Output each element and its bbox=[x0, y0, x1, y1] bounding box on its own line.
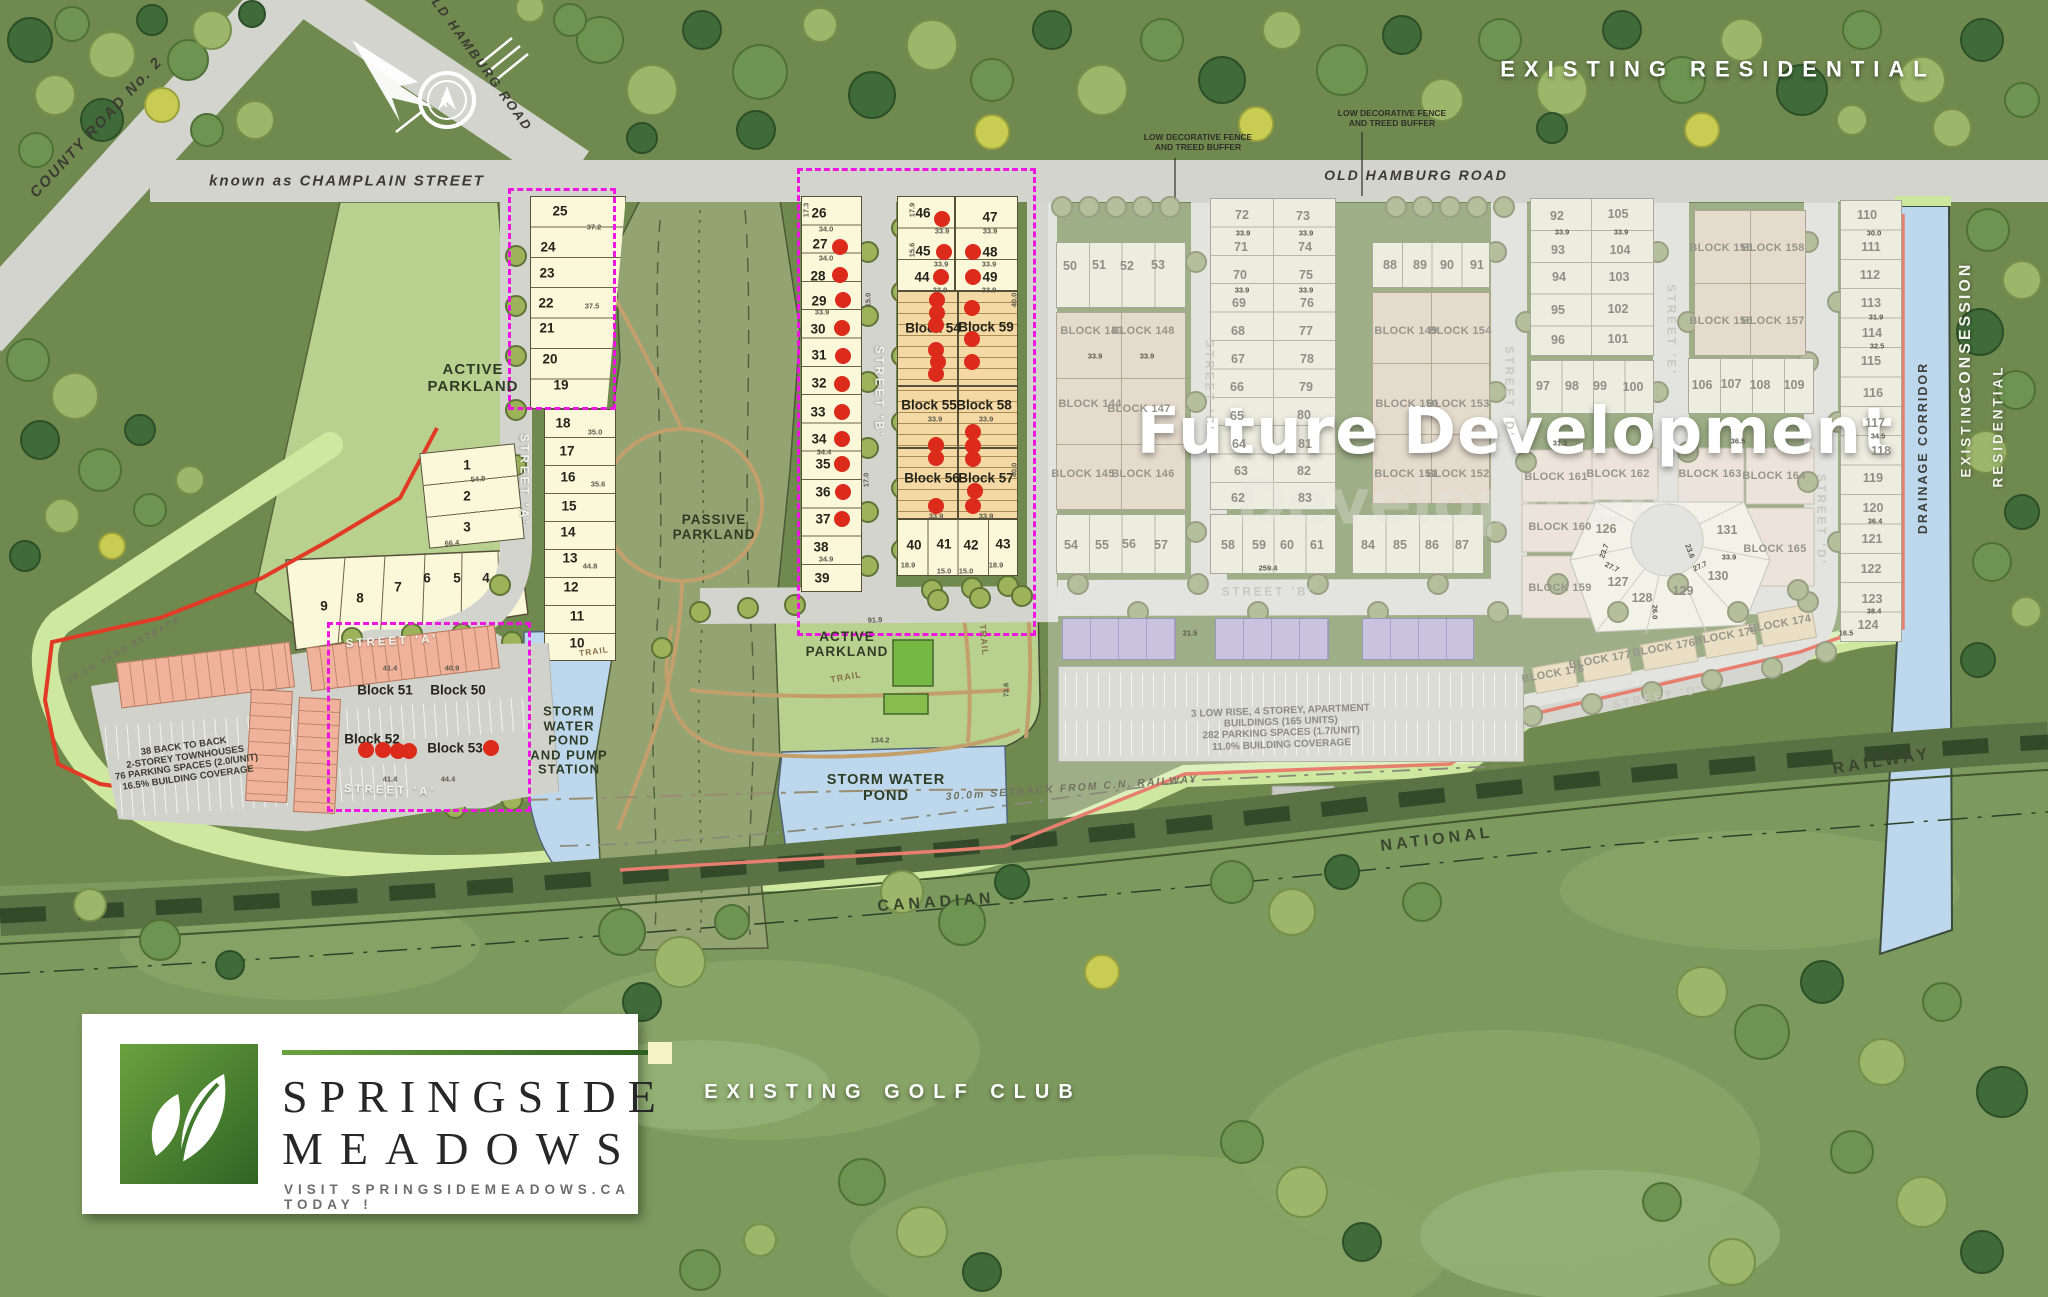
tree-icon bbox=[1677, 967, 1727, 1017]
logo-corner-chip bbox=[648, 1042, 672, 1064]
tree-icon bbox=[1308, 574, 1328, 594]
tree-icon bbox=[1440, 197, 1460, 217]
tree-icon bbox=[652, 638, 672, 658]
tree-icon bbox=[1788, 580, 1808, 600]
tree-icon bbox=[655, 937, 705, 987]
tree-icon bbox=[1486, 382, 1506, 402]
tree-icon bbox=[79, 449, 121, 491]
tree-icon bbox=[849, 72, 895, 118]
tree-icon bbox=[216, 951, 244, 979]
tree-icon bbox=[963, 1253, 1001, 1291]
tree-icon bbox=[1961, 643, 1995, 677]
tree-icon bbox=[1967, 209, 2009, 251]
tree-icon bbox=[1548, 574, 1568, 594]
tree-icon bbox=[1486, 522, 1506, 542]
tree-icon bbox=[1068, 574, 1088, 594]
tree-icon bbox=[554, 4, 586, 36]
tree-icon bbox=[975, 115, 1009, 149]
tree-icon bbox=[1721, 19, 1763, 61]
tree-icon bbox=[897, 1207, 947, 1257]
tree-icon bbox=[1403, 883, 1441, 921]
logo-name-line2: MEADOWS bbox=[282, 1122, 639, 1175]
tree-icon bbox=[1643, 1183, 1681, 1221]
tree-icon bbox=[939, 899, 985, 945]
tree-icon bbox=[1709, 1239, 1755, 1285]
tree-icon bbox=[839, 1159, 885, 1205]
tree-icon bbox=[236, 101, 274, 139]
tree-icon bbox=[1762, 658, 1782, 678]
tree-icon bbox=[1368, 602, 1388, 622]
tree-icon bbox=[1239, 107, 1273, 141]
tree-icon bbox=[1685, 113, 1719, 147]
sports-court-2 bbox=[884, 694, 928, 714]
site-plan-map: N COUNTY ROAD No. 2OLD H bbox=[0, 0, 2048, 1297]
tree-icon bbox=[1516, 312, 1536, 332]
tree-icon bbox=[733, 45, 787, 99]
tree-icon bbox=[1199, 57, 1245, 103]
tree-icon bbox=[290, 658, 310, 678]
tree-icon bbox=[193, 11, 231, 49]
tree-icon bbox=[1828, 532, 1848, 552]
tree-icon bbox=[2005, 83, 2039, 117]
tree-icon bbox=[1428, 574, 1448, 594]
tree-icon bbox=[1728, 602, 1748, 622]
tree-icon bbox=[1702, 670, 1722, 690]
tree-icon bbox=[1079, 197, 1099, 217]
tree-icon bbox=[8, 18, 52, 62]
tree-icon bbox=[1648, 242, 1668, 262]
tree-icon bbox=[1413, 197, 1433, 217]
tree-icon bbox=[1642, 682, 1662, 702]
logo-rule bbox=[282, 1050, 672, 1055]
tree-icon bbox=[137, 5, 167, 35]
tree-icon bbox=[1221, 1121, 1263, 1163]
tree-icon bbox=[1269, 889, 1315, 935]
logo-tagline: VISIT SPRINGSIDEMEADOWS.CA TODAY ! bbox=[284, 1182, 638, 1212]
tree-icon bbox=[19, 133, 53, 167]
tree-icon bbox=[1106, 197, 1126, 217]
tree-icon bbox=[1467, 197, 1487, 217]
tree-icon bbox=[1343, 1223, 1381, 1261]
tree-icon bbox=[1462, 718, 1482, 738]
tree-icon bbox=[1659, 57, 1705, 103]
tree-icon bbox=[516, 0, 544, 22]
tree-icon bbox=[55, 7, 89, 41]
tree-icon bbox=[1216, 322, 1236, 342]
tree-icon bbox=[971, 59, 1013, 101]
tree-icon bbox=[1537, 113, 1567, 143]
tree-icon bbox=[1923, 983, 1961, 1021]
tree-icon bbox=[239, 1, 265, 27]
tree-icon bbox=[1777, 65, 1827, 115]
tree-icon bbox=[1077, 65, 1127, 115]
tree-icon bbox=[89, 32, 135, 78]
tree-icon bbox=[1648, 382, 1668, 402]
tree-icon bbox=[715, 905, 749, 939]
phase-outline-north bbox=[508, 188, 616, 410]
tree-icon bbox=[680, 1250, 720, 1290]
tree-icon bbox=[1798, 472, 1818, 492]
tree-icon bbox=[1479, 19, 1521, 61]
tree-icon bbox=[1933, 109, 1971, 147]
tree-icon bbox=[1957, 309, 2003, 355]
tree-icon bbox=[1211, 861, 1253, 903]
tree-icon bbox=[1843, 11, 1881, 49]
tree-icon bbox=[1831, 1131, 1873, 1173]
tree-icon bbox=[1248, 602, 1268, 622]
tree-icon bbox=[738, 598, 758, 618]
tree-icon bbox=[1899, 57, 1945, 103]
tree-icon bbox=[1801, 961, 1843, 1003]
tree-icon bbox=[1603, 11, 1641, 49]
tree-icon bbox=[683, 11, 721, 49]
tree-icon bbox=[1052, 197, 1072, 217]
tree-icon bbox=[1977, 1067, 2027, 1117]
tree-icon bbox=[2003, 261, 2041, 299]
tree-icon bbox=[1186, 392, 1206, 412]
tree-icon bbox=[1973, 543, 2011, 581]
tree-icon bbox=[1961, 19, 2003, 61]
tree-icon bbox=[1128, 602, 1148, 622]
tree-icon bbox=[1160, 197, 1180, 217]
tree-icon bbox=[1494, 197, 1514, 217]
tree-icon bbox=[737, 111, 775, 149]
tree-icon bbox=[1798, 232, 1818, 252]
tree-icon bbox=[1141, 19, 1183, 61]
tree-icon bbox=[1897, 1177, 1947, 1227]
tree-icon bbox=[45, 499, 79, 533]
tree-icon bbox=[995, 865, 1029, 899]
tree-icon bbox=[1582, 694, 1602, 714]
tree-icon bbox=[1488, 602, 1508, 622]
tree-icon bbox=[140, 920, 180, 960]
sports-court bbox=[893, 640, 933, 686]
tree-icon bbox=[1216, 462, 1236, 482]
tree-icon bbox=[1277, 1167, 1327, 1217]
tree-icon bbox=[74, 889, 106, 921]
tree-icon bbox=[1678, 312, 1698, 332]
tree-icon bbox=[1317, 45, 1367, 95]
tree-icon bbox=[1678, 442, 1698, 462]
tree-icon bbox=[134, 494, 166, 526]
tree-icon bbox=[1537, 65, 1587, 115]
tree-icon bbox=[35, 75, 75, 115]
tree-icon bbox=[99, 533, 125, 559]
tree-icon bbox=[81, 99, 123, 141]
tree-icon bbox=[1516, 452, 1536, 472]
tree-icon bbox=[21, 421, 59, 459]
logo-name-line1: SPRINGSIDE bbox=[282, 1070, 668, 1123]
tree-icon bbox=[803, 8, 837, 42]
tree-icon bbox=[7, 339, 49, 381]
tree-icon bbox=[506, 455, 526, 475]
tree-icon bbox=[1186, 522, 1206, 542]
tree-icon bbox=[881, 871, 923, 913]
tree-icon bbox=[1263, 11, 1301, 49]
tree-icon bbox=[1816, 642, 1836, 662]
tree-icon bbox=[176, 466, 204, 494]
tree-icon bbox=[191, 114, 223, 146]
logo-leaf-icon bbox=[120, 1044, 258, 1184]
tree-icon bbox=[1668, 574, 1688, 594]
tree-icon bbox=[907, 20, 957, 70]
tree-icon bbox=[744, 1224, 776, 1256]
tree-icon bbox=[125, 415, 155, 445]
tree-icon bbox=[10, 541, 40, 571]
logo-card: SPRINGSIDE MEADOWS VISIT SPRINGSIDEMEADO… bbox=[82, 1014, 638, 1214]
tree-icon bbox=[1828, 292, 1848, 312]
tree-icon bbox=[627, 65, 677, 115]
tree-icon bbox=[1997, 371, 2035, 409]
tree-icon bbox=[1608, 602, 1628, 622]
tree-icon bbox=[1486, 242, 1506, 262]
tree-icon bbox=[1421, 79, 1463, 121]
tree-icon bbox=[1828, 412, 1848, 432]
tree-icon bbox=[52, 373, 98, 419]
tree-icon bbox=[2005, 495, 2039, 529]
tree-icon bbox=[1383, 16, 1421, 54]
tree-icon bbox=[1859, 1039, 1905, 1085]
tree-icon bbox=[690, 602, 710, 622]
tree-icon bbox=[1033, 11, 1071, 49]
tree-icon bbox=[1837, 105, 1867, 135]
phase-outline-central bbox=[797, 168, 1036, 636]
tree-icon bbox=[1522, 706, 1542, 726]
tree-icon bbox=[1186, 252, 1206, 272]
tree-icon bbox=[627, 123, 657, 153]
tree-icon bbox=[1133, 197, 1153, 217]
tree-icon bbox=[490, 575, 510, 595]
tree-icon bbox=[599, 909, 645, 955]
tree-icon bbox=[1325, 855, 1359, 889]
tree-icon bbox=[2011, 597, 2041, 627]
tree-icon bbox=[1798, 352, 1818, 372]
tree-icon bbox=[1386, 197, 1406, 217]
tree-icon bbox=[1961, 1231, 2003, 1273]
tree-icon bbox=[1735, 1005, 1789, 1059]
phase-outline-blocks-50-53 bbox=[327, 622, 531, 812]
tree-icon bbox=[1965, 431, 2007, 473]
tree-icon bbox=[1188, 574, 1208, 594]
tree-icon bbox=[145, 88, 179, 122]
tree-icon bbox=[1085, 955, 1119, 989]
